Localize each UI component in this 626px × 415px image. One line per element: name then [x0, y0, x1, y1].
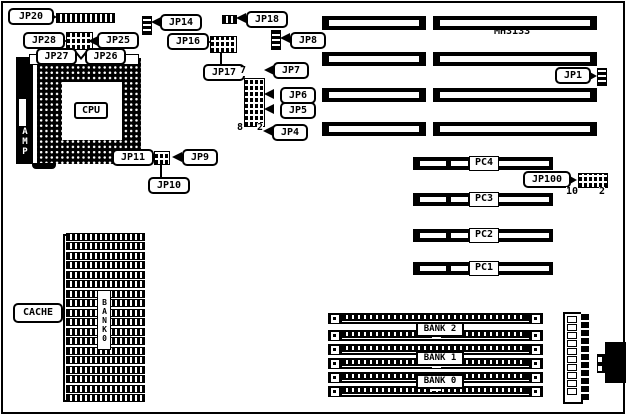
isa-slot-1-left [322, 16, 426, 30]
pin-number-2: 2 [257, 123, 263, 133]
memory-bank-label-0: BANK 0 [416, 374, 464, 389]
pointer-jp5 [264, 104, 274, 114]
pointer-jp6 [264, 89, 274, 99]
keyboard-connector-pin [598, 366, 602, 371]
jumper-label-jp17: JP17 [203, 64, 245, 81]
amp-chip-label: AMP [20, 127, 30, 157]
amp-chip-notch [19, 99, 26, 126]
jumper-label-jp8: JP8 [290, 32, 326, 49]
amp-chip: AMP [16, 57, 33, 164]
jumper-label-jp11: JP11 [112, 149, 154, 166]
motherboard-diagram: JP20 JP28 JP25 JP27 JP26 AMP CPU JP14 JP… [0, 0, 626, 415]
jumper-label-jp1: JP1 [555, 67, 591, 84]
keyboard-connector-icon [605, 342, 626, 383]
memory-bank-label-1: BANK 1 [416, 351, 464, 366]
jumper-label-jp18: JP18 [246, 11, 288, 28]
cache-bracket-bottom-tick [63, 400, 69, 402]
jumper-label-jp20: JP20 [8, 8, 54, 25]
cache-bracket [63, 236, 65, 402]
isa-slot-4-left [322, 122, 426, 136]
jumper-label-jp16: JP16 [167, 33, 209, 50]
jumper-label-jp27: JP27 [36, 48, 77, 65]
socket-foot [32, 163, 56, 169]
pin-number-8: 8 [237, 123, 243, 133]
jumper-strip-jp1 [597, 68, 607, 86]
jumper-block-jp4-jp7 [244, 78, 265, 127]
pc-slot-label-pc1: PC1 [469, 261, 499, 276]
jumper-label-jp7: JP7 [273, 62, 309, 79]
cache-bracket-top-tick [63, 234, 69, 236]
pin-number-7: 7 [240, 66, 246, 76]
pin-number-2b: 2 [599, 187, 605, 197]
cache-chip-row [66, 252, 145, 260]
jumper-label-jp25: JP25 [97, 32, 139, 49]
jumper-label-jp10: JP10 [148, 177, 190, 194]
cache-chip-row [66, 233, 145, 241]
jumper-label-jp100: JP100 [523, 171, 571, 188]
cpu-label: CPU [74, 102, 108, 119]
isa-slot-2-left [322, 52, 426, 66]
jumper-strip-jp18 [222, 15, 237, 24]
isa-slot-3-right [433, 88, 597, 102]
simm-clip [330, 314, 340, 324]
jumper-label-jp5: JP5 [280, 102, 316, 119]
isa-slot-4-right [433, 122, 597, 136]
isa-slot-1-right [433, 16, 597, 30]
power-connector-pins [581, 312, 589, 400]
pc-slot-label-pc3: PC3 [469, 192, 499, 207]
pointer-jp9 [172, 152, 182, 162]
keyboard-connector-pin [598, 357, 602, 362]
jumper-block-jp9-jp11 [154, 151, 170, 165]
jumper-block-jp16-jp17 [210, 36, 237, 53]
cache-chip-row [66, 366, 145, 374]
pin-number-10: 10 [566, 187, 578, 197]
isa-slot-3-left [322, 88, 426, 102]
cache-chip-row [66, 271, 145, 279]
cache-bank0-label: BANK0 [97, 290, 111, 350]
pointer-line-jp10 [160, 163, 162, 177]
jumper-label-jp26: JP26 [85, 48, 126, 65]
power-connector [563, 312, 583, 404]
jumper-strip-jp20 [56, 13, 115, 23]
jumper-label-jp4: JP4 [272, 124, 308, 141]
jumper-label-jp14: JP14 [160, 14, 202, 31]
pointer-jp18 [236, 13, 246, 23]
jumper-label-jp28: JP28 [23, 32, 65, 49]
cache-chip-row [66, 385, 145, 393]
cache-label: CACHE [13, 303, 63, 323]
pointer-jp8 [280, 33, 290, 43]
simm-clip [531, 314, 541, 324]
isa-slot-2-right [433, 52, 597, 66]
pc-slot-label-pc4: PC4 [469, 156, 499, 171]
memory-bank-label-2: BANK 2 [416, 322, 464, 337]
jumper-label-jp9: JP9 [182, 149, 218, 166]
pc-slot-label-pc2: PC2 [469, 228, 499, 243]
